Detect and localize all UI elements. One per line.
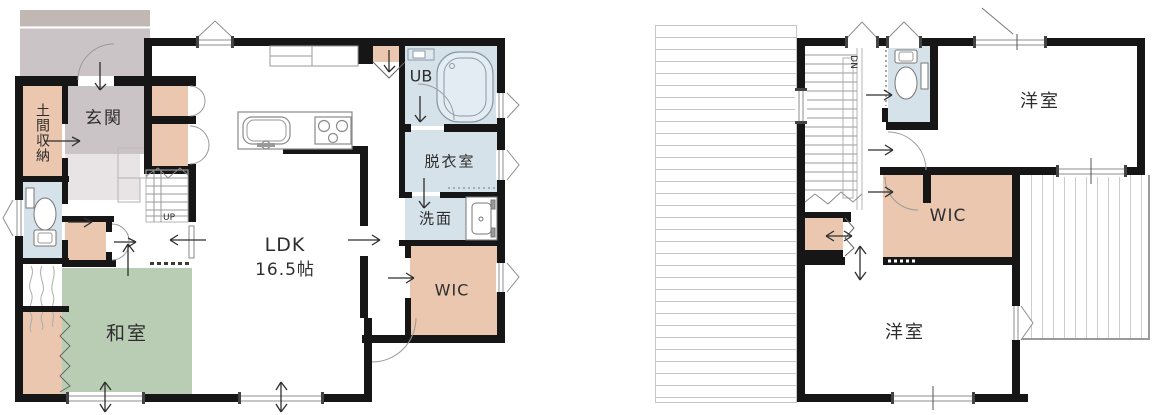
bathtub bbox=[437, 52, 493, 122]
stairs-up-label: UP bbox=[163, 213, 175, 223]
sliding-door-stairs bbox=[189, 226, 194, 258]
kitchen-island bbox=[238, 112, 352, 149]
hall-area bbox=[65, 154, 140, 200]
room-label-wic-2f: WIC bbox=[930, 206, 967, 226]
senmen-vanity bbox=[466, 197, 497, 240]
hall-closet-a-area bbox=[152, 86, 188, 116]
window-top-1f bbox=[196, 21, 234, 48]
window-balcony-east bbox=[1012, 306, 1033, 340]
room-label-senmen: 洗面 bbox=[419, 208, 453, 229]
window-balcony-north bbox=[1056, 158, 1127, 184]
ldk-size: 16.5帖 bbox=[255, 258, 315, 283]
yoshitsu-north-door-swing bbox=[888, 132, 926, 170]
stairs-down-2f bbox=[800, 46, 862, 210]
ub-counter bbox=[408, 49, 434, 60]
room-label-yoshitsu-north: 洋室 bbox=[1020, 87, 1060, 113]
closet-2f-area bbox=[800, 218, 843, 250]
toilet2-basin bbox=[921, 63, 928, 89]
stairs-down-label: DN bbox=[848, 55, 858, 69]
room-label-datsuishitsu: 脱衣室 bbox=[424, 151, 475, 172]
window-toilet-1f bbox=[3, 200, 24, 236]
window-datsui-east bbox=[496, 150, 519, 180]
kitchen-cabinets bbox=[270, 46, 358, 66]
room-label-washitsu: 和室 bbox=[106, 319, 148, 346]
room-label-ub: UB bbox=[410, 67, 433, 86]
window-ub-east bbox=[496, 93, 519, 118]
plan-drawing bbox=[0, 0, 1176, 415]
window-wic-east bbox=[496, 263, 519, 292]
window-top-yoshitsu-north bbox=[973, 8, 1047, 50]
window-stairs-west bbox=[795, 88, 807, 124]
closet-north-washitsu-area bbox=[65, 222, 106, 262]
window-top-casement-b bbox=[886, 22, 922, 48]
room-label-doma-shuno: 土間収納 bbox=[32, 103, 52, 163]
room-label-wic-1f: WIC bbox=[435, 281, 470, 300]
floor-plan-canvas: 玄関 土間収納 LDK 16.5帖 和室 UB 脱衣室 洗面 WIC UP 洋室… bbox=[0, 0, 1176, 415]
room-label-genkan: 玄関 bbox=[85, 104, 123, 129]
window-yoshitsu-south bbox=[891, 386, 975, 410]
room-label-ldk: LDK 16.5帖 bbox=[255, 233, 315, 283]
window-top-casement-a bbox=[845, 22, 879, 48]
hall-closet-b-area bbox=[152, 124, 188, 166]
ldk-name: LDK bbox=[255, 233, 315, 258]
room-label-yoshitsu-south: 洋室 bbox=[885, 318, 925, 344]
